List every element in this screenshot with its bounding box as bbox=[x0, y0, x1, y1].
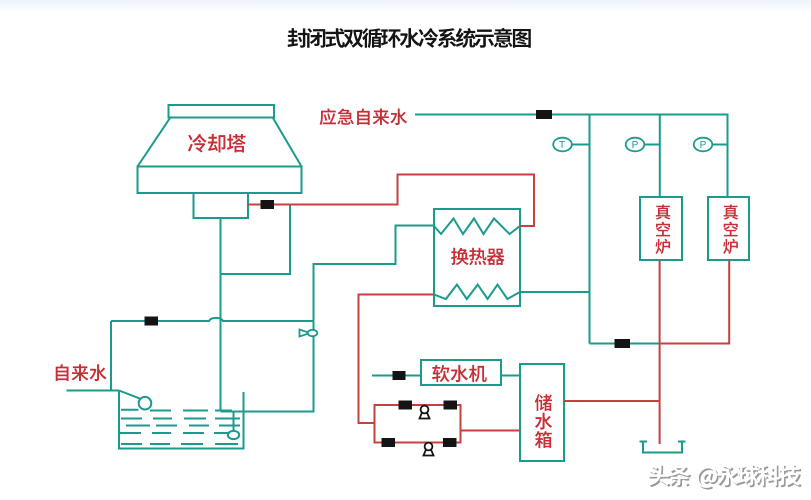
svg-text:T: T bbox=[559, 140, 565, 151]
svg-text:P: P bbox=[700, 140, 707, 151]
svg-text:P: P bbox=[632, 140, 639, 151]
